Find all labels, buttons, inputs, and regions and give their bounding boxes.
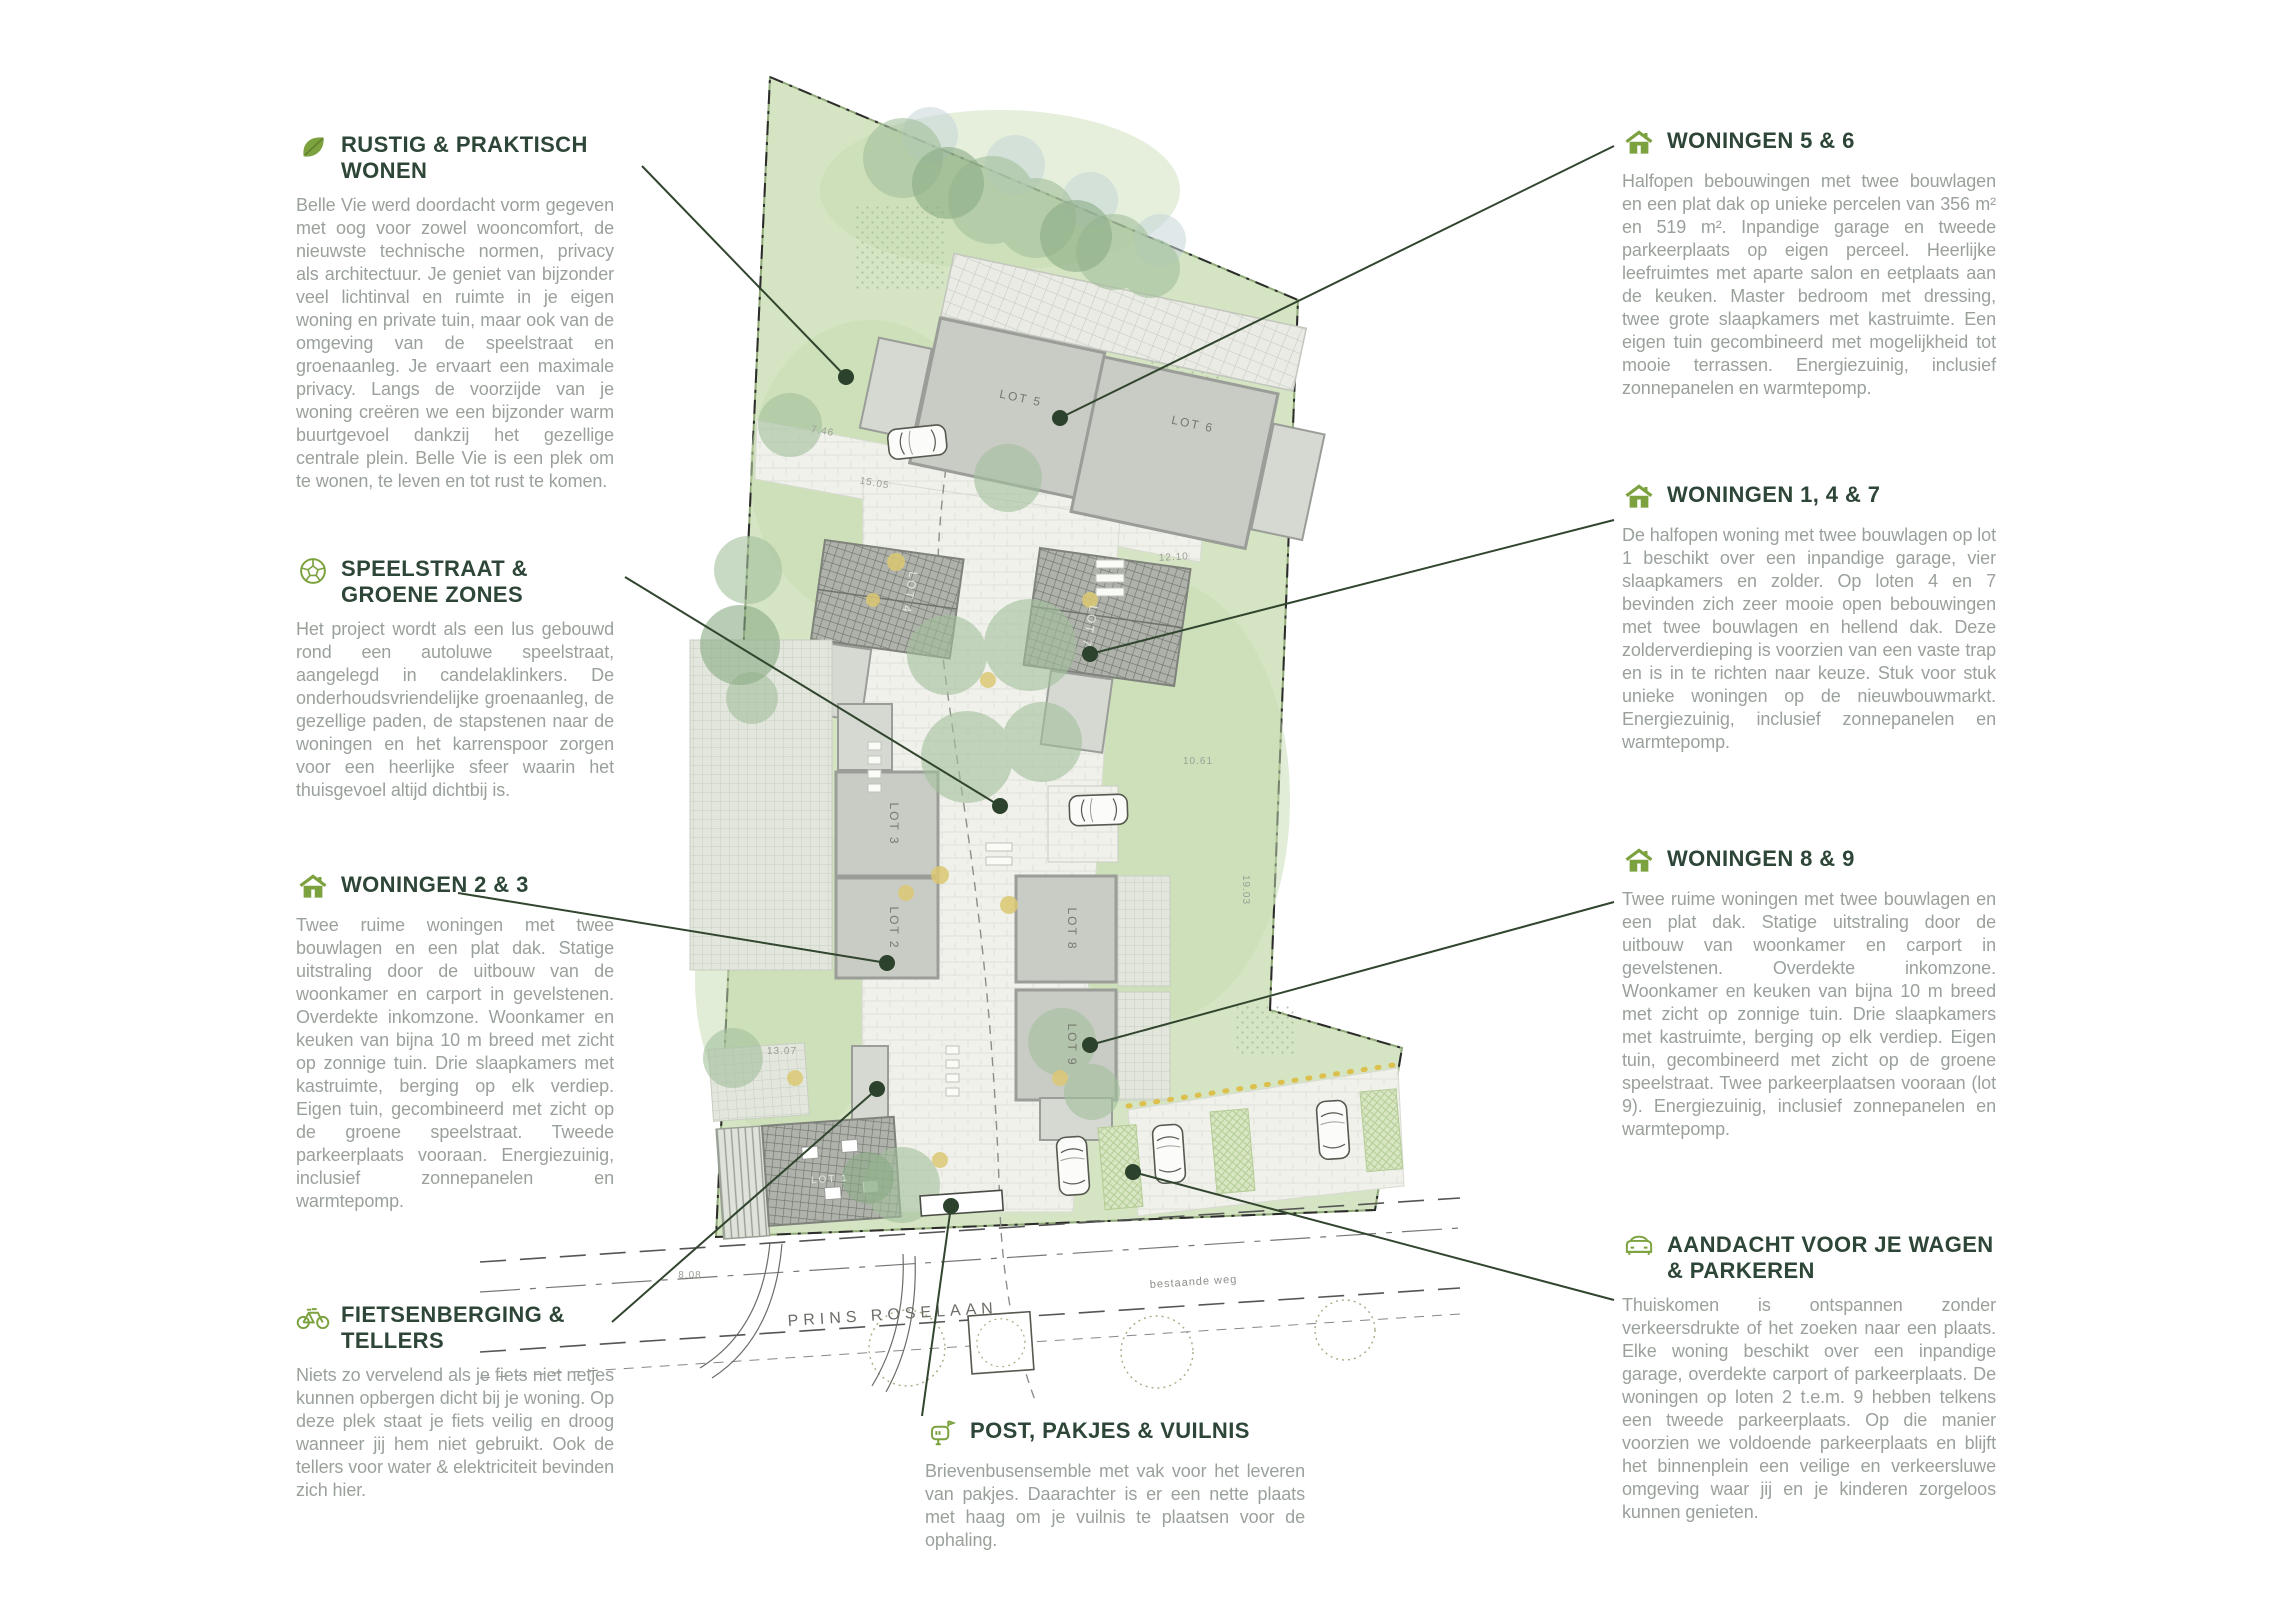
house-icon xyxy=(1622,844,1656,878)
note-aandacht-wagen-parkeren: AANDACHT VOOR JE WAGEN & PARKEREN Thuisk… xyxy=(1622,1232,1996,1524)
house-icon xyxy=(1622,126,1656,160)
car-lot5 xyxy=(887,424,948,460)
house-icon xyxy=(1622,480,1656,514)
note-body: Twee ruime woningen met twee bouwlagen e… xyxy=(1622,888,1996,1141)
note-title: POST, PAKJES & VUILNIS xyxy=(970,1418,1250,1444)
car-lot8 xyxy=(1069,794,1128,826)
note-title: RUSTIG & PRAKTISCH WONEN xyxy=(341,132,614,184)
svg-text:13.07: 13.07 xyxy=(767,1046,797,1057)
note-body: Brievenbusensemble met vak voor het leve… xyxy=(925,1460,1305,1552)
vuilnis-plek xyxy=(968,1312,1034,1374)
svg-text:10.61: 10.61 xyxy=(1183,756,1213,767)
note-title: WONINGEN 5 & 6 xyxy=(1667,128,1855,154)
note-body: Belle Vie werd doordacht vorm gegeven me… xyxy=(296,194,614,493)
note-rustig-praktisch-wonen: RUSTIG & PRAKTISCH WONEN Belle Vie werd … xyxy=(296,132,614,493)
svg-text:12.10: 12.10 xyxy=(1159,551,1190,564)
house-icon xyxy=(296,870,330,904)
svg-text:8.08: 8.08 xyxy=(678,1270,701,1281)
lot-label-3: LOT 3 xyxy=(887,802,901,845)
lot-label-8: LOT 8 xyxy=(1065,907,1079,950)
note-woningen-2-3: WONINGEN 2 & 3 Twee ruime woningen met t… xyxy=(296,872,614,1213)
car-icon xyxy=(1622,1230,1656,1264)
note-body: Thuiskomen is ontspannen zonder verkeers… xyxy=(1622,1294,1996,1524)
bicycle-icon xyxy=(296,1300,330,1334)
note-body: Twee ruime woningen met twee bouwlagen e… xyxy=(296,914,614,1213)
lot-label-9: LOT 9 xyxy=(1065,1023,1079,1066)
note-body: Het project wordt als een lus gebouwd ro… xyxy=(296,618,614,802)
note-post-pakjes-vuilnis: POST, PAKJES & VUILNIS Brievenbusensembl… xyxy=(925,1418,1305,1552)
note-title: AANDACHT VOOR JE WAGEN & PARKEREN xyxy=(1667,1232,1996,1284)
note-title: FIETSENBERGING & TELLERS xyxy=(341,1302,614,1354)
mailbox-icon xyxy=(925,1416,959,1450)
leaf-icon xyxy=(296,130,330,164)
note-fietsenberging-tellers: FIETSENBERGING & TELLERS Niets zo vervel… xyxy=(296,1302,614,1502)
note-title: WONINGEN 8 & 9 xyxy=(1667,846,1855,872)
svg-text:19.03: 19.03 xyxy=(1240,875,1251,905)
note-title: WONINGEN 1, 4 & 7 xyxy=(1667,482,1880,508)
building-lot3-annex xyxy=(838,704,892,770)
note-title: SPEELSTRAAT & GROENE ZONES xyxy=(341,556,614,608)
note-woningen-1-4-7: WONINGEN 1, 4 & 7 De halfopen woning met… xyxy=(1622,482,1996,754)
note-woningen-8-9: WONINGEN 8 & 9 Twee ruime woningen met t… xyxy=(1622,846,1996,1141)
lot-label-2: LOT 2 xyxy=(887,906,901,949)
note-speelstraat-groene-zones: SPEELSTRAAT & GROENE ZONES Het project w… xyxy=(296,556,614,802)
note-woningen-5-6: WONINGEN 5 & 6 Halfopen bebouwingen met … xyxy=(1622,128,1996,400)
ball-icon xyxy=(296,554,330,588)
site-plan-page: LOT 5 LOT 6 LOT 4 LOT 7 LOT 3 LOT 2 LOT … xyxy=(0,0,2290,1620)
street-name-secondary: bestaande weg xyxy=(1149,1274,1237,1291)
note-body: Niets zo vervelend als je fiets niet net… xyxy=(296,1364,614,1502)
note-title: WONINGEN 2 & 3 xyxy=(341,872,529,898)
note-body: Halfopen bebouwingen met twee bouwlagen … xyxy=(1622,170,1996,400)
building-lot3 xyxy=(836,772,938,876)
note-body: De halfopen woning met twee bouwlagen op… xyxy=(1622,524,1996,754)
